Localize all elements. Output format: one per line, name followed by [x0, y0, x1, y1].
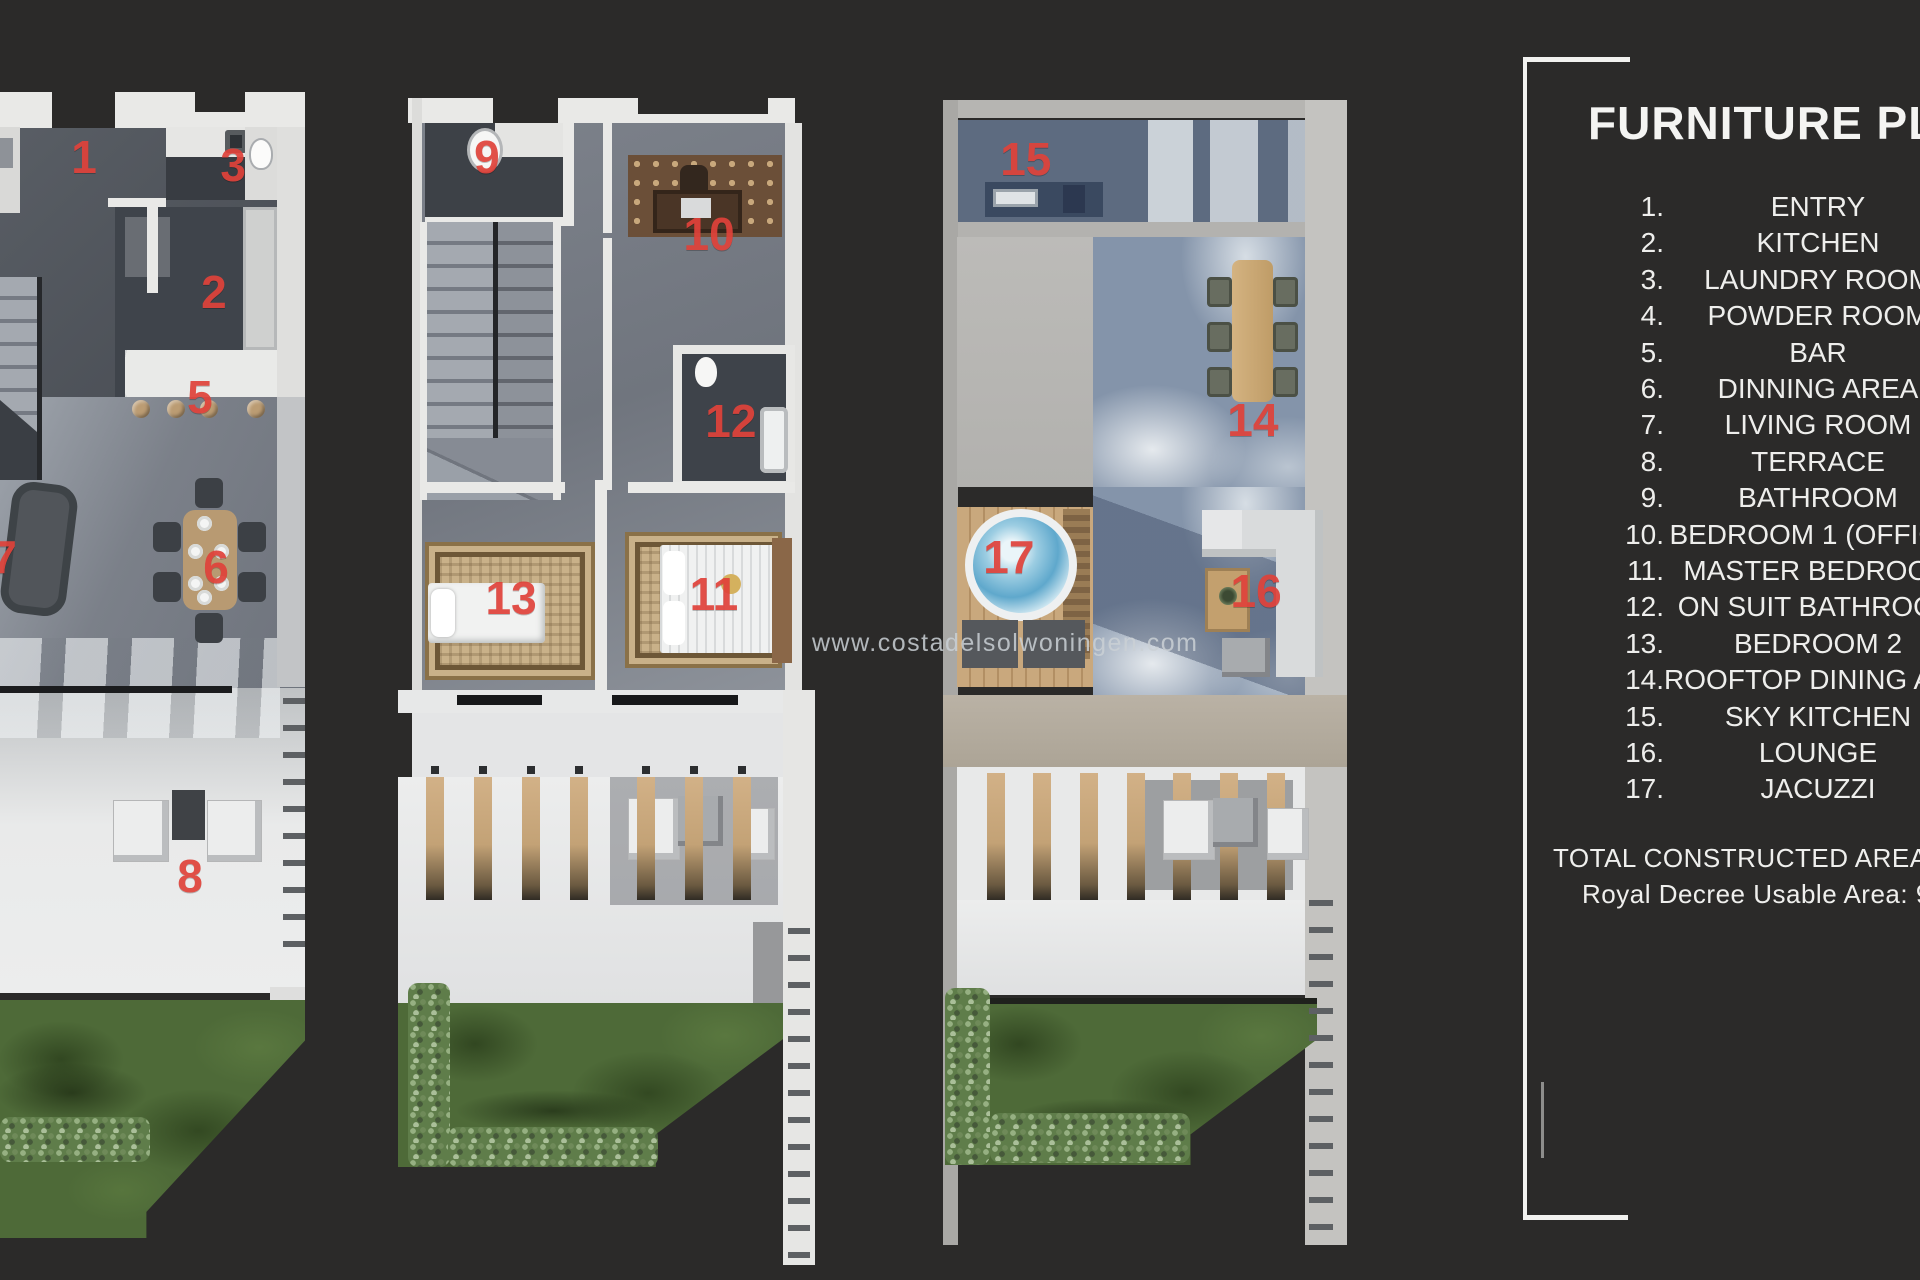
wall-segment	[147, 198, 158, 293]
hedge	[0, 1117, 150, 1162]
bar-stool	[167, 400, 185, 418]
roof-block	[957, 237, 1093, 487]
legend-item: 17.JACUZZI	[1500, 770, 1920, 807]
anchor-dot	[527, 766, 535, 774]
outdoor-table	[1213, 798, 1258, 847]
plate	[188, 544, 203, 559]
legend-item-number: 10.	[1500, 516, 1664, 553]
door-gap	[493, 98, 558, 123]
plate	[197, 516, 212, 531]
legend-item-label: LOUNGE	[1664, 734, 1920, 771]
sink	[993, 189, 1038, 207]
bar-stool	[132, 400, 150, 418]
legend-item-label: DINNING AREA	[1664, 370, 1920, 407]
legend-item: 8.TERRACE	[1500, 443, 1920, 480]
dining-table	[1232, 260, 1273, 402]
legend-item-label: BAR	[1664, 334, 1920, 371]
legend-list: 1.ENTRY2.KITCHEN3.LAUNDRY ROOM4.POWDER R…	[1500, 188, 1920, 828]
ground-floor-plan: 1325768	[0, 78, 310, 1195]
legend-bracket-top-arm	[1523, 57, 1630, 62]
stair-rail	[37, 277, 42, 480]
legend-item: 12.ON SUIT BATHROOM	[1500, 588, 1920, 625]
room-number-marker: 14	[1227, 397, 1278, 443]
pillow	[663, 601, 685, 645]
legend-item-label: BEDROOM 2	[1664, 625, 1920, 662]
shower	[243, 207, 277, 350]
room-number-marker: 12	[705, 398, 756, 444]
vanity	[0, 138, 13, 168]
legend-inner-tick	[1541, 1082, 1544, 1158]
pergola-slat	[637, 777, 655, 900]
legend-item: 1.ENTRY	[1500, 188, 1920, 225]
legend-item: 11.MASTER BEDROOM	[1500, 552, 1920, 589]
legend-item: 16.LOUNGE	[1500, 734, 1920, 771]
headboard	[772, 538, 792, 663]
lounger	[113, 800, 169, 862]
pillow	[431, 589, 455, 637]
room-number-marker: 15	[1000, 136, 1051, 182]
room-number-marker: 13	[486, 575, 537, 621]
legend-item-number: 12.	[1500, 588, 1664, 625]
wall-segment	[628, 482, 795, 493]
wall-band	[958, 222, 1305, 237]
pergola-slat	[522, 777, 540, 900]
legend-item-number: 7.	[1500, 406, 1664, 443]
legend-item: 2.KITCHEN	[1500, 224, 1920, 261]
pergola-slat	[1127, 773, 1145, 900]
roof-piece	[638, 98, 768, 114]
wall-segment	[603, 123, 612, 233]
legend-item: 3.LAUNDRY ROOM	[1500, 261, 1920, 298]
legend-item-label: BEDROOM 1 (OFFICE)	[1664, 516, 1920, 553]
room-number-marker: 11	[690, 571, 739, 617]
room-number-marker: 5	[187, 374, 213, 420]
legend-item-number: 11.	[1500, 552, 1664, 589]
appliance	[1063, 185, 1085, 213]
legend-item-label: LIVING ROOM	[1664, 406, 1920, 443]
legend-item: 15.SKY KITCHEN	[1500, 698, 1920, 735]
legend-item-label: BATHROOM	[1664, 479, 1920, 516]
legend-item-number: 8.	[1500, 443, 1664, 480]
legend-item-label: ON SUIT BATHROOM	[1664, 588, 1920, 625]
terrace-floor	[957, 900, 1305, 995]
plate	[188, 576, 203, 591]
window-bar	[612, 695, 738, 705]
watermark: www.costadelsolwoningen.com	[812, 629, 1199, 658]
dining-chair	[238, 522, 266, 552]
wall-segment	[0, 92, 305, 128]
side-table	[172, 790, 205, 840]
room-number-marker: 7	[0, 534, 17, 580]
legend-title: FURNITURE PLAN	[1588, 96, 1920, 150]
dining-chair	[195, 478, 223, 508]
pergola-slat	[987, 773, 1005, 900]
wall-segment	[563, 123, 574, 226]
legend-item-number: 5.	[1500, 334, 1664, 371]
anchor-dot	[479, 766, 487, 774]
total-constructed-area: TOTAL CONSTRUCTED AREA: 1	[1553, 843, 1920, 874]
legend-item: 7.LIVING ROOM	[1500, 406, 1920, 443]
room-number-marker: 3	[220, 142, 246, 188]
window-sill	[0, 686, 232, 693]
legend-item-label: TERRACE	[1664, 443, 1920, 480]
legend-item-number: 16.	[1500, 734, 1664, 771]
first-floor-plan: 910121311	[398, 78, 802, 1280]
legend-item-label: ROOFTOP DINING AREA	[1664, 661, 1920, 698]
anchor-dot	[431, 766, 439, 774]
legend-item-number: 15.	[1500, 698, 1664, 735]
hedge	[990, 1113, 1190, 1163]
legend-item: 13.BEDROOM 2	[1500, 625, 1920, 662]
legend-item: 14.ROOFTOP DINING AREA	[1500, 661, 1920, 698]
pergola-slat	[1080, 773, 1098, 900]
door-gap	[195, 92, 245, 112]
dining-chair	[1207, 277, 1232, 307]
side-wall	[277, 397, 305, 687]
sofa-section	[1276, 510, 1323, 677]
lounger	[207, 800, 262, 862]
room-number-marker: 8	[177, 853, 203, 899]
legend-item-label: KITCHEN	[1664, 224, 1920, 261]
window-bar	[457, 695, 542, 705]
dining-chair	[153, 572, 181, 602]
dining-chair	[1273, 322, 1298, 352]
exterior-stairs	[1309, 900, 1333, 1245]
wall-segment	[425, 482, 565, 493]
room-number-marker: 1	[71, 134, 97, 180]
garden-divider	[945, 998, 1317, 1004]
side-table	[1222, 638, 1270, 677]
legend-item-label: LAUNDRY ROOM	[1664, 261, 1920, 298]
anchor-dot	[738, 766, 746, 774]
pergola-slat	[426, 777, 444, 900]
toilet	[249, 138, 273, 170]
wall-segment	[603, 238, 612, 490]
rooftop-plan: 15141716	[943, 95, 1347, 1245]
toilet	[695, 357, 717, 387]
hedge	[408, 983, 450, 1167]
wall-segment	[277, 127, 305, 397]
bath-counter	[495, 123, 563, 157]
legend-item: 5.BAR	[1500, 334, 1920, 371]
exterior-stairs	[283, 698, 305, 968]
pergola-slat	[570, 777, 588, 900]
planter-band	[943, 695, 1347, 767]
wall-segment	[595, 480, 607, 697]
legend-item-label: POWDER ROOM	[1664, 297, 1920, 334]
outdoor-seat	[1163, 800, 1215, 860]
anchor-dot	[690, 766, 698, 774]
legend-item-number: 13.	[1500, 625, 1664, 662]
legend-item: 6.DINNING AREA	[1500, 370, 1920, 407]
legend-item-number: 14.	[1500, 661, 1664, 698]
dining-chair	[1207, 367, 1232, 397]
room-number-marker: 2	[201, 269, 227, 315]
dining-chair	[1273, 277, 1298, 307]
legend-item-number: 17.	[1500, 770, 1664, 807]
room-number-marker: 6	[203, 544, 229, 590]
dining-chair	[153, 522, 181, 552]
room-number-marker: 9	[474, 134, 500, 180]
legend-item-number: 4.	[1500, 297, 1664, 334]
dining-floor	[1093, 237, 1305, 487]
legend-item-label: SKY KITCHEN	[1664, 698, 1920, 735]
wall-shade	[753, 922, 783, 1003]
furniture-plan-page: 1325768	[0, 0, 1920, 1280]
pergola-slat	[733, 777, 751, 900]
exterior-stairs	[788, 928, 810, 1258]
legend-item: 10.BEDROOM 1 (OFFICE)	[1500, 516, 1920, 553]
pergola-slat	[685, 777, 703, 900]
hedge	[448, 1127, 658, 1167]
legend-item-number: 2.	[1500, 224, 1664, 261]
dining-chair	[1207, 322, 1232, 352]
wall-segment	[108, 198, 166, 207]
legend-item: 4.POWDER ROOM	[1500, 297, 1920, 334]
legend-item-label: ENTRY	[1664, 188, 1920, 225]
legend-item-number: 9.	[1500, 479, 1664, 516]
parapet-top	[943, 100, 1347, 118]
anchor-dot	[642, 766, 650, 774]
legend-item: 9.BATHROOM	[1500, 479, 1920, 516]
legend-item-number: 3.	[1500, 261, 1664, 298]
pergola-slat	[1033, 773, 1051, 900]
hedge	[945, 988, 990, 1165]
legend-item-number: 6.	[1500, 370, 1664, 407]
pillow	[663, 551, 685, 595]
pergola-slat	[474, 777, 492, 900]
anchor-dot	[575, 766, 583, 774]
outdoor-seat	[1267, 808, 1309, 860]
room-number-marker: 10	[683, 211, 734, 257]
bathtub	[760, 407, 788, 473]
legend-item-number: 1.	[1500, 188, 1664, 225]
stair-wall	[420, 222, 427, 500]
door-gap	[52, 92, 115, 128]
usable-area: Royal Decree Usable Area: 9	[1582, 879, 1920, 910]
stair-wall	[553, 222, 561, 500]
dining-chair	[195, 613, 223, 643]
bar-stool	[247, 400, 265, 418]
room-number-marker: 17	[983, 534, 1034, 580]
legend-item-label: JACUZZI	[1664, 770, 1920, 807]
dining-chair	[238, 572, 266, 602]
legend-bracket-bottom-arm	[1523, 1215, 1628, 1220]
dining-chair	[1273, 367, 1298, 397]
room-number-marker: 16	[1231, 568, 1282, 614]
legend-item-label: MASTER BEDROOM	[1664, 552, 1920, 589]
